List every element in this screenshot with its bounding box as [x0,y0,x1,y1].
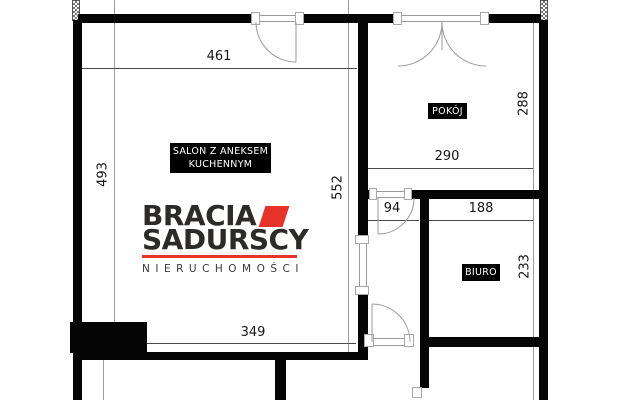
dim-label-188: 188 [461,201,501,216]
room-label-pokoj: POKÓJ [428,103,467,119]
logo-brand-line2: SADURSCY [142,228,308,252]
door-arc [398,22,442,66]
door-arc [372,304,410,342]
dim-label-288: 288 [517,84,532,124]
dim-label-552: 552 [331,168,346,208]
dim-label-349: 349 [233,325,273,340]
dim-label-493: 493 [96,155,111,195]
dim-label-94: 94 [373,201,411,216]
room-label-salon: SALON Z ANEKSEM KUCHENNYM [170,143,271,173]
door-arc [442,22,486,66]
dim-label-290: 290 [427,149,467,164]
floor-plan: 461 493 552 288 290 94 188 233 349 SALON… [0,0,620,400]
dim-label-461: 461 [199,49,239,64]
room-label-salon-line1: SALON Z ANEKSEM [173,145,268,158]
dim-label-233: 233 [518,247,533,287]
room-label-salon-line2: KUCHENNYM [173,158,268,171]
door-arc [256,22,296,62]
room-label-biuro: BIURO [462,264,500,281]
door-swing-arcs [0,0,620,400]
logo-subtitle: NIERUCHOMOŚCI [142,263,308,275]
agency-watermark: BRACIA SADURSCY NIERUCHOMOŚCI [142,204,308,275]
